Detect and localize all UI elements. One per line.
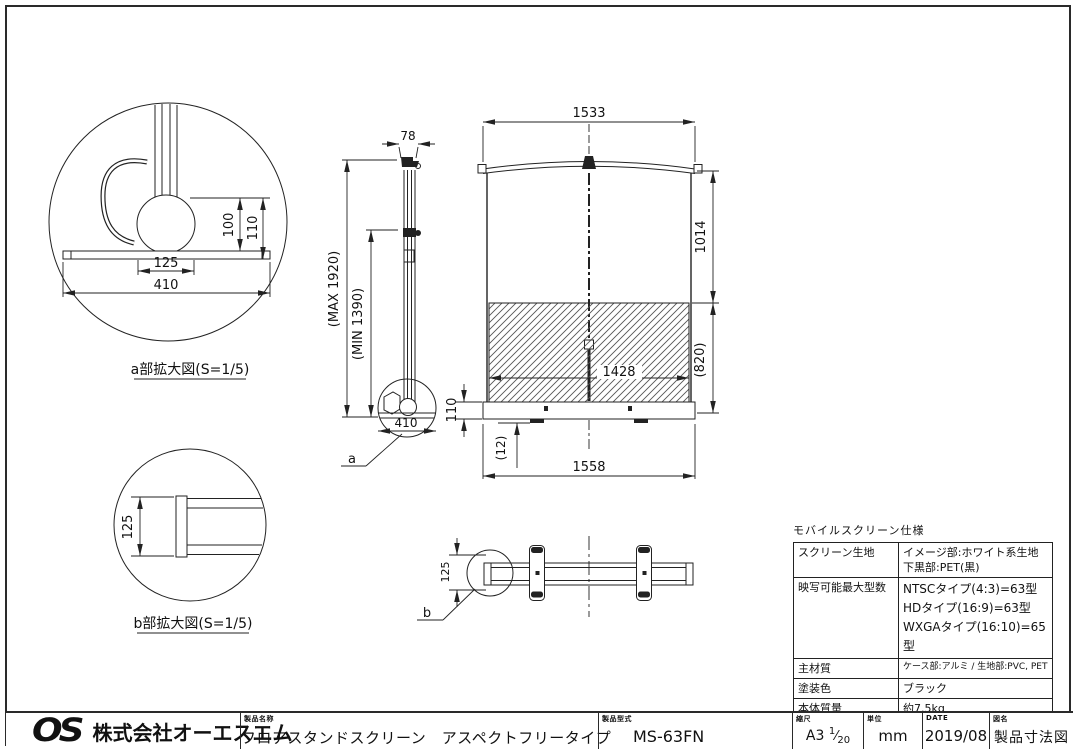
foot-right xyxy=(634,419,648,423)
drawing-title-cell: 図名 製品寸法図 xyxy=(989,713,1073,749)
pole-mid-joint xyxy=(403,228,416,237)
date-cell: DATE 2019/08 xyxy=(922,713,989,749)
product-name-value: フロアスタンドスクリーン アスペクトフリータイプ xyxy=(241,727,598,748)
model-value: MS-63FN xyxy=(599,727,792,746)
model-cell: 製品型式 MS-63FN xyxy=(598,713,792,749)
spec-value-line: ケース部:アルミ / 生地部:PVC, PET xyxy=(903,661,1048,674)
detail-b-caption: b部拡大図(S=1/5) xyxy=(134,616,253,632)
ball-joint xyxy=(137,195,195,253)
unit-value: mm xyxy=(864,727,922,745)
handle-section xyxy=(384,392,400,414)
spec-label: スクリーン生地 xyxy=(794,543,899,578)
base-case xyxy=(483,402,695,419)
front-view: 1533 1014 1428 (820) 110 (12) 1558 xyxy=(445,106,719,479)
leader-b xyxy=(443,589,475,620)
spec-value-line: 下黒部:PET(黒) xyxy=(903,560,1048,575)
spec-value: ケース部:アルミ / 生地部:PVC, PET xyxy=(899,659,1053,679)
dim-detail-a-100: 100 xyxy=(222,213,237,238)
detail-ref-b: b xyxy=(423,606,431,621)
bar-end-cap xyxy=(176,496,187,557)
dim-detail-a-110: 110 xyxy=(246,216,261,241)
dim-front-1558: 1558 xyxy=(572,460,605,475)
dim-front-1533: 1533 xyxy=(572,106,605,121)
detail-indicator-b-circle xyxy=(467,550,513,596)
drawing-title-value: 製品寸法図 xyxy=(990,727,1073,747)
dim-detail-a-125: 125 xyxy=(154,256,179,271)
spec-table: スクリーン生地 イメージ部:ホワイト系生地 下黒部:PET(黒) 映写可能最大型… xyxy=(793,542,1053,719)
spec-label: 主材質 xyxy=(794,659,899,679)
product-name-cell: 製品名称 フロアスタンドスクリーン アスペクトフリータイプ xyxy=(240,713,598,749)
spec-row-fabric: スクリーン生地 イメージ部:ホワイト系生地 下黒部:PET(黒) xyxy=(794,543,1053,578)
detail-a-caption: a部拡大図(S=1/5) xyxy=(131,362,250,378)
dim-detail-b-125: 125 xyxy=(121,515,136,540)
date-label: DATE xyxy=(926,714,948,722)
spec-table-title: モバイルスクリーン仕様 xyxy=(793,522,1053,538)
scale-label: 縮尺 xyxy=(796,714,811,724)
spec-value: イメージ部:ホワイト系生地 下黒部:PET(黒) xyxy=(899,543,1053,578)
company-section: OS 株式会社オーエスエム xyxy=(6,713,240,749)
scale-fraction: 1⁄20 xyxy=(829,729,850,744)
spec-label: 塗装色 xyxy=(794,679,899,699)
dim-side-min: (MIN 1390) xyxy=(351,288,366,360)
scale-value: A3 1⁄20 xyxy=(793,726,863,746)
spec-value-line: NTSCタイプ(4:3)=63型 xyxy=(903,580,1048,599)
hatch-area xyxy=(489,303,689,402)
spec-row-color: 塗装色 ブラック xyxy=(794,679,1053,699)
scale-denominator: 20 xyxy=(837,735,850,746)
spec-row-material: 主材質 ケース部:アルミ / 生地部:PVC, PET xyxy=(794,659,1053,679)
title-block: OS 株式会社オーエスエム 製品名称 フロアスタンドスクリーン アスペクトフリー… xyxy=(6,711,1073,749)
spec-value-line: WXGAタイプ(16:10)=65型 xyxy=(903,618,1048,656)
spec-value: ブラック xyxy=(899,679,1053,699)
dim-base-110: 110 xyxy=(445,398,460,423)
pole-head-clamp xyxy=(401,157,419,167)
dim-detail-a-410: 410 xyxy=(154,278,179,293)
dim-side-410: 410 xyxy=(395,416,418,430)
spec-value-line: ブラック xyxy=(903,681,1048,696)
dim-side-max: (MAX 1920) xyxy=(327,251,342,327)
spec-value-line: HDタイプ(16:9)=63型 xyxy=(903,599,1048,618)
dim-side-78: 78 xyxy=(400,129,415,143)
dim-plan-125: 125 xyxy=(439,562,452,583)
spec-label: 映写可能最大型数 xyxy=(794,578,899,659)
model-label: 製品型式 xyxy=(602,714,632,724)
side-view: 78 (MAX 1920) (MIN 1390) 410 a xyxy=(327,129,436,467)
detail-ref-a: a xyxy=(348,452,356,467)
foot-left xyxy=(530,419,544,423)
scale-numerator: 1 xyxy=(829,726,835,737)
spec-table-section: モバイルスクリーン仕様 スクリーン生地 イメージ部:ホワイト系生地 下黒部:PE… xyxy=(793,522,1053,719)
center-knob xyxy=(582,156,596,169)
spec-value-line: イメージ部:ホワイト系生地 xyxy=(903,545,1048,560)
dim-front-1428: 1428 xyxy=(602,365,635,380)
scale-sheet: A3 xyxy=(806,728,824,744)
drawing-title-label: 図名 xyxy=(993,714,1008,724)
detail-b-circle xyxy=(114,449,266,601)
unit-cell: 単位 mm xyxy=(863,713,922,749)
scale-cell: 縮尺 A3 1⁄20 xyxy=(792,713,863,749)
dim-front-1014: 1014 xyxy=(694,220,709,253)
company-logo: OS xyxy=(32,715,81,747)
spec-row-max-size: 映写可能最大型数 NTSCタイプ(4:3)=63型 HDタイプ(16:9)=63… xyxy=(794,578,1053,659)
plan-view: 125 b xyxy=(417,536,693,621)
plan-base-bar xyxy=(484,563,693,585)
dim-front-820: (820) xyxy=(693,343,708,378)
leader-a xyxy=(366,434,402,466)
date-value: 2019/08 xyxy=(923,727,989,745)
spec-value: NTSCタイプ(4:3)=63型 HDタイプ(16:9)=63型 WXGAタイプ… xyxy=(899,578,1053,659)
detail-view-b: 125 b部拡大図(S=1/5) xyxy=(114,449,266,633)
unit-label: 単位 xyxy=(867,714,882,724)
detail-view-a: 100 110 125 410 a部拡大図(S=1/5) xyxy=(49,103,287,379)
product-name-label: 製品名称 xyxy=(244,714,274,724)
dim-base-12: (12) xyxy=(494,436,508,461)
